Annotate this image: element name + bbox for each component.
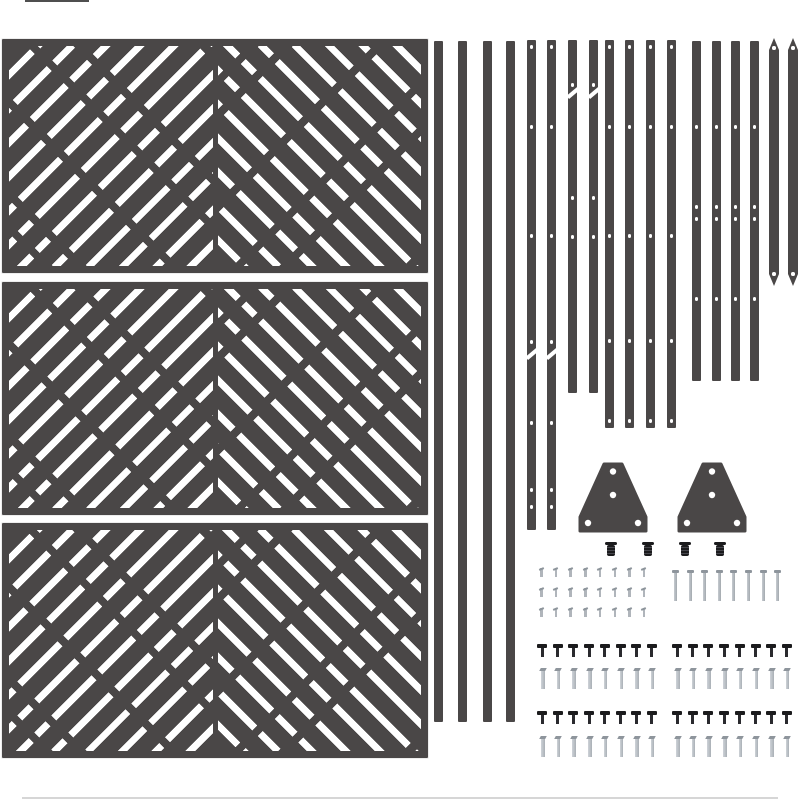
screw-hole xyxy=(649,339,653,343)
panel-stripes-right xyxy=(215,289,421,508)
screw-hole xyxy=(530,234,534,238)
black-screw xyxy=(691,711,694,724)
lattice-panel-3 xyxy=(2,523,428,758)
silver-screw xyxy=(557,736,561,757)
black-screw xyxy=(588,644,591,657)
screw-hole xyxy=(649,419,653,423)
screw-hole xyxy=(695,205,699,209)
silver-screw xyxy=(755,668,759,689)
rail-slat-11 xyxy=(646,40,655,428)
silver-screw xyxy=(541,736,545,757)
black-screw xyxy=(556,644,559,657)
silver-screw xyxy=(572,736,576,757)
screw-hole xyxy=(592,196,596,200)
rail-slat-3 xyxy=(483,41,492,722)
screw-hole xyxy=(592,83,596,87)
silver-screw xyxy=(692,668,696,689)
screw-hole xyxy=(571,196,575,200)
screw-hole xyxy=(530,421,534,425)
black-screw xyxy=(723,711,726,724)
silver-screw xyxy=(676,668,680,689)
black-screw xyxy=(619,711,622,724)
small-screw xyxy=(584,568,587,577)
rail-slat-12 xyxy=(667,40,676,428)
rail-slat-14 xyxy=(712,41,721,381)
black-screw xyxy=(588,711,591,724)
screw-hole xyxy=(628,125,632,129)
silver-screw xyxy=(635,736,639,757)
screw-hole xyxy=(550,234,554,238)
screw-hole xyxy=(649,45,653,49)
screw-hole xyxy=(715,205,719,209)
screw-hole xyxy=(550,45,554,49)
product-parts-image xyxy=(0,0,800,800)
silver-screw xyxy=(651,668,655,689)
black-screw xyxy=(541,711,544,724)
screw-hole xyxy=(649,234,653,238)
screw-hole xyxy=(592,235,596,239)
cut-notch xyxy=(525,348,538,360)
black-screw xyxy=(770,644,773,657)
rail-slat-15 xyxy=(731,41,740,381)
long-nail xyxy=(747,570,750,601)
black-screw xyxy=(603,644,606,657)
screw-hole xyxy=(608,45,612,49)
silver-screw xyxy=(707,668,711,689)
screw-hole xyxy=(772,272,776,276)
screw-hole xyxy=(670,419,674,423)
silver-screw xyxy=(786,668,790,689)
small-screw xyxy=(540,608,543,617)
screw-hole xyxy=(772,46,776,50)
screw-hole xyxy=(734,217,738,221)
panel-center-ridge xyxy=(213,523,218,758)
screw-hole xyxy=(530,488,534,492)
photo-edge-mark-1 xyxy=(25,0,89,2)
small-screw xyxy=(643,608,646,617)
silver-screw xyxy=(676,736,680,757)
silver-screw xyxy=(755,736,759,757)
screw-hole xyxy=(530,125,534,129)
photo-edge-mark-2 xyxy=(22,797,778,799)
black-screw xyxy=(754,644,757,657)
silver-screw xyxy=(588,736,592,757)
black-screw xyxy=(770,711,773,724)
screw-hole xyxy=(608,125,612,129)
small-screw xyxy=(614,568,617,577)
screw-hole xyxy=(753,297,757,301)
small-screw xyxy=(584,608,587,617)
plug-bolt-1 xyxy=(605,542,617,557)
silver-screw xyxy=(557,668,561,689)
long-nail xyxy=(732,570,735,601)
small-screw xyxy=(599,568,602,577)
screw-hole xyxy=(753,217,757,221)
screw-hole xyxy=(550,125,554,129)
small-screw xyxy=(540,568,543,577)
small-screw xyxy=(569,568,572,577)
small-screw xyxy=(628,608,631,617)
screw-hole xyxy=(670,234,674,238)
screw-hole xyxy=(753,205,757,209)
silver-screw xyxy=(572,668,576,689)
screw-hole xyxy=(791,272,795,276)
silver-screw xyxy=(604,736,608,757)
small-screw xyxy=(599,608,602,617)
black-screw xyxy=(635,711,638,724)
small-screw xyxy=(628,568,631,577)
screw-hole xyxy=(695,125,699,129)
panel-center-ridge xyxy=(213,39,218,273)
gusset-bracket-1 xyxy=(578,462,648,533)
panel-stripes-right xyxy=(215,46,421,266)
long-nail xyxy=(689,570,692,601)
small-screw xyxy=(599,588,602,597)
panel-stripes-left xyxy=(9,530,215,751)
small-screw xyxy=(614,588,617,597)
screw-hole xyxy=(649,125,653,129)
black-screw xyxy=(676,711,679,724)
black-screw xyxy=(707,711,710,724)
small-screw xyxy=(569,588,572,597)
cut-notch xyxy=(566,87,579,99)
plug-bolt-3 xyxy=(679,542,691,557)
screw-hole xyxy=(670,125,674,129)
silver-screw xyxy=(707,736,711,757)
silver-screw xyxy=(541,668,545,689)
black-screw xyxy=(619,644,622,657)
long-nail xyxy=(776,570,779,601)
rail-slat-17 xyxy=(769,38,779,286)
screw-hole xyxy=(571,83,575,87)
screw-hole xyxy=(628,339,632,343)
panel-center-ridge xyxy=(213,282,218,515)
small-screw xyxy=(555,588,558,597)
black-screw xyxy=(572,644,575,657)
plug-bolt-2 xyxy=(642,542,654,557)
rail-slat-16 xyxy=(750,41,759,381)
screw-hole xyxy=(530,45,534,49)
black-screw xyxy=(754,711,757,724)
screw-hole xyxy=(571,235,575,239)
silver-screw xyxy=(770,736,774,757)
rail-slat-5 xyxy=(527,40,536,530)
rail-slat-13 xyxy=(692,41,701,381)
black-screw xyxy=(738,711,741,724)
cut-notch xyxy=(587,87,600,99)
screw-hole xyxy=(550,340,554,344)
panel-stripes-left xyxy=(9,46,215,266)
long-nail xyxy=(674,570,677,601)
screw-hole xyxy=(753,125,757,129)
screw-hole xyxy=(670,45,674,49)
black-screw xyxy=(650,711,653,724)
screw-hole xyxy=(734,125,738,129)
long-nail xyxy=(762,570,765,601)
silver-screw xyxy=(651,736,655,757)
silver-screw xyxy=(786,736,790,757)
long-nail xyxy=(703,570,706,601)
rail-slat-2 xyxy=(458,41,467,722)
black-screw xyxy=(738,644,741,657)
screw-hole xyxy=(530,340,534,344)
small-screw xyxy=(628,588,631,597)
small-screw xyxy=(643,568,646,577)
small-screw xyxy=(614,608,617,617)
black-screw xyxy=(635,644,638,657)
small-screw xyxy=(555,568,558,577)
screw-hole xyxy=(715,297,719,301)
rail-slat-7 xyxy=(568,40,577,393)
screw-hole xyxy=(670,339,674,343)
black-screw xyxy=(723,644,726,657)
black-screw xyxy=(572,711,575,724)
long-nail xyxy=(718,570,721,601)
screw-hole xyxy=(550,421,554,425)
silver-screw xyxy=(723,736,727,757)
black-screw xyxy=(650,644,653,657)
screw-hole xyxy=(628,234,632,238)
screw-hole xyxy=(608,339,612,343)
small-screw xyxy=(569,608,572,617)
gusset-bracket-2 xyxy=(677,462,747,533)
black-screw xyxy=(603,711,606,724)
lattice-panel-1 xyxy=(2,39,428,273)
screw-hole xyxy=(734,205,738,209)
silver-screw xyxy=(588,668,592,689)
black-screw xyxy=(785,644,788,657)
rail-slat-6 xyxy=(547,40,556,530)
silver-screw xyxy=(739,668,743,689)
screw-hole xyxy=(695,297,699,301)
black-screw xyxy=(556,711,559,724)
silver-screw xyxy=(635,668,639,689)
screw-hole xyxy=(695,217,699,221)
silver-screw xyxy=(604,668,608,689)
black-screw xyxy=(707,644,710,657)
screw-hole xyxy=(550,488,554,492)
silver-screw xyxy=(620,736,624,757)
screw-hole xyxy=(734,297,738,301)
rail-slat-1 xyxy=(434,41,443,722)
lattice-panel-2 xyxy=(2,282,428,515)
screw-hole xyxy=(550,505,554,509)
screw-hole xyxy=(715,217,719,221)
black-screw xyxy=(691,644,694,657)
screw-hole xyxy=(608,419,612,423)
small-screw xyxy=(584,588,587,597)
silver-screw xyxy=(770,668,774,689)
small-screw xyxy=(555,608,558,617)
screw-hole xyxy=(628,419,632,423)
silver-screw xyxy=(620,668,624,689)
rail-slat-8 xyxy=(589,40,598,393)
black-screw xyxy=(785,711,788,724)
screw-hole xyxy=(628,45,632,49)
panel-stripes-left xyxy=(9,289,215,508)
cut-notch xyxy=(545,348,558,360)
silver-screw xyxy=(723,668,727,689)
panel-stripes-right xyxy=(215,530,421,751)
silver-screw xyxy=(692,736,696,757)
rail-slat-18 xyxy=(788,38,798,286)
small-screw xyxy=(643,588,646,597)
plug-bolt-4 xyxy=(714,542,726,557)
small-screw xyxy=(540,588,543,597)
black-screw xyxy=(541,644,544,657)
screw-hole xyxy=(791,46,795,50)
screw-hole xyxy=(608,234,612,238)
screw-hole xyxy=(715,125,719,129)
rail-slat-9 xyxy=(605,40,614,428)
black-screw xyxy=(676,644,679,657)
rail-slat-4 xyxy=(506,41,515,722)
silver-screw xyxy=(739,736,743,757)
screw-hole xyxy=(530,505,534,509)
rail-slat-10 xyxy=(625,40,634,428)
